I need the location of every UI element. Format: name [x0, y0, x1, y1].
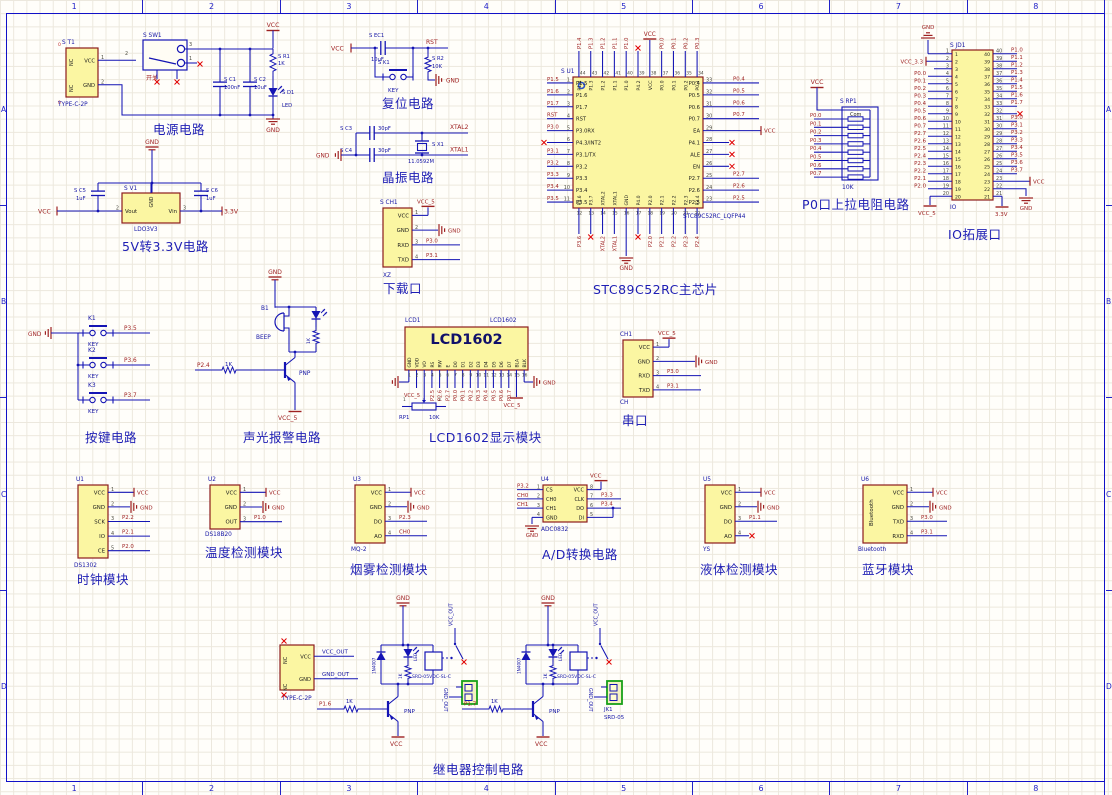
designator[interactable]: U3 [353, 477, 361, 483]
label[interactable]: GND [526, 533, 539, 539]
net-label[interactable]: KEY [88, 409, 99, 415]
module-title-lcd[interactable]: LCD1602显示模块 [429, 427, 542, 446]
module-title-ldo[interactable]: 5V转3.3V电路 [122, 236, 209, 255]
pin-name[interactable]: P2.2 [671, 195, 677, 205]
contact-dot[interactable] [599, 643, 601, 645]
net-label[interactable]: P1.4 [577, 37, 583, 49]
pin-number[interactable]: 10 [476, 373, 482, 379]
pin-number[interactable]: 6 [590, 503, 593, 509]
key-switch[interactable] [90, 330, 95, 335]
net-label[interactable]: P0.6 [499, 390, 505, 401]
pin-number[interactable]: 1 [537, 484, 540, 490]
module-title-mcu[interactable]: STC89C52RC主芯片 [593, 279, 718, 298]
rotated-pin-name[interactable]: NC [69, 84, 75, 92]
pin-name[interactable]: 25 [984, 164, 990, 170]
net-label[interactable]: PNP [299, 371, 311, 377]
net-label[interactable]: P2.4 [914, 153, 926, 159]
designator[interactable]: S V1 [124, 186, 137, 192]
pin-number[interactable]: 4 [910, 530, 913, 536]
pin-number[interactable]: 1 [243, 487, 246, 493]
gnd-flag[interactable]: GND [268, 269, 282, 276]
pin-name[interactable]: P0.7 [689, 117, 700, 123]
resistor[interactable] [425, 53, 431, 76]
pin-number[interactable]: 13 [943, 138, 949, 144]
net-label[interactable]: GND_OUT [442, 688, 448, 712]
pin-name[interactable]: D1 [461, 361, 467, 367]
net-label[interactable]: S C6 [206, 188, 218, 194]
net-label[interactable]: P1.7 [464, 702, 477, 708]
pin-name[interactable]: D0 [453, 361, 459, 367]
net-label[interactable]: SRD-05 [604, 715, 624, 721]
label[interactable]: GND [922, 25, 935, 31]
pin-name[interactable]: AO [374, 534, 382, 540]
net-label[interactable]: P3.3 [1011, 137, 1023, 143]
net-label[interactable]: P3.0 [547, 125, 559, 131]
part-name[interactable]: IO [950, 205, 957, 211]
pin-number[interactable]: 4 [537, 512, 540, 518]
pin-number[interactable]: 1 [408, 373, 411, 379]
pin-name[interactable]: 12 [955, 134, 961, 140]
net-label[interactable]: P2.3 [914, 161, 926, 167]
pin-name[interactable]: 10 [955, 119, 961, 125]
pin-name[interactable]: Vout [125, 209, 137, 215]
net-label[interactable]: RP1 [399, 415, 409, 421]
net-label[interactable]: 3 [189, 42, 192, 48]
net-label[interactable]: P2.3 [683, 236, 689, 247]
pin-name[interactable]: VDD [415, 357, 421, 367]
net-label[interactable]: VCC_OUT [322, 649, 349, 655]
pin-number[interactable]: 3 [111, 516, 114, 522]
label[interactable]: GND [705, 360, 718, 366]
pin-number[interactable]: 4 [946, 71, 949, 77]
net-label[interactable]: P1.2 [1011, 62, 1023, 68]
net-label[interactable]: P1.6 [319, 702, 332, 708]
pin-number[interactable]: 2 [738, 501, 741, 507]
net-label[interactable]: K2 [88, 347, 96, 354]
pin-name[interactable]: DO [576, 506, 584, 512]
pin-name[interactable]: 1 [955, 52, 958, 58]
net-label[interactable]: VCC [390, 741, 402, 748]
pin-number[interactable]: 22 [695, 211, 701, 217]
net-label[interactable]: S C2 [254, 77, 266, 83]
net-label[interactable]: 1K [543, 673, 548, 679]
pin-name[interactable]: VCC [648, 81, 654, 91]
net-label[interactable]: P1.6 [547, 89, 559, 95]
pin-name[interactable]: P1.4 [577, 80, 583, 90]
net-label[interactable]: P0.1 [810, 121, 821, 127]
pin-number[interactable]: 3 [910, 516, 913, 522]
pin-name[interactable]: P2.0 [648, 195, 654, 205]
pin-name[interactable]: VCC [226, 490, 237, 496]
pin-number[interactable]: 36 [674, 71, 680, 77]
collector[interactable] [285, 358, 295, 366]
collector[interactable] [533, 697, 543, 705]
pin-number[interactable]: 23 [706, 197, 712, 203]
net-label[interactable]: GND_OUT [587, 688, 593, 712]
pin-name[interactable]: XTAL1 [612, 191, 618, 205]
net-label[interactable]: P1.3 [1011, 70, 1023, 76]
net-label[interactable]: P3.7 [1011, 167, 1023, 173]
pin-name[interactable]: 16 [955, 164, 961, 170]
net-label[interactable]: GND [316, 154, 330, 160]
diode[interactable] [404, 649, 413, 657]
diode[interactable] [269, 88, 278, 96]
net-label[interactable]: LED [413, 653, 418, 661]
net-label[interactable]: 1N4007 [372, 657, 377, 674]
pin-number[interactable]: 31 [996, 116, 1002, 122]
pin-number[interactable]: 8 [462, 373, 465, 379]
pin-name[interactable]: CH0 [546, 497, 556, 503]
net-label[interactable]: P0.1 [914, 78, 926, 84]
pin-name[interactable]: SCK [94, 520, 105, 526]
pin-name[interactable]: P3.1/TX [576, 152, 596, 158]
pin-number[interactable]: 35 [686, 71, 692, 77]
net-label[interactable]: LED [558, 653, 563, 661]
net-label[interactable]: VCC_OUT [594, 603, 600, 626]
pin-number[interactable]: 17 [943, 168, 949, 174]
pin-number[interactable]: 4 [738, 530, 741, 536]
pin-number[interactable]: 3 [946, 63, 949, 69]
pin-name[interactable]: DO [724, 519, 732, 525]
net-label[interactable]: P0.5 [914, 108, 926, 114]
net-label[interactable]: BEEP [256, 335, 271, 341]
pin-name[interactable]: EN [693, 164, 700, 170]
pin-name[interactable]: 22 [984, 187, 990, 193]
pin-number[interactable]: 19 [943, 183, 949, 189]
pin-name[interactable]: BLA [514, 359, 520, 368]
pin-number[interactable]: 11 [943, 123, 949, 129]
designator[interactable]: U6 [861, 477, 869, 483]
net-label[interactable]: 1N4007 [517, 657, 522, 674]
net-label[interactable]: P1.7 [547, 101, 559, 107]
pin-name[interactable]: RXD [397, 243, 409, 249]
label[interactable]: GND [272, 506, 285, 512]
pin-name[interactable]: P2.3 [683, 195, 689, 205]
pin-name[interactable]: 14 [955, 149, 961, 155]
designator[interactable]: U1 [76, 477, 84, 483]
pin-name[interactable]: 33 [984, 104, 990, 110]
pin-number[interactable]: 28 [996, 138, 1002, 144]
part-name[interactable]: ADC0832 [541, 527, 569, 533]
pin-number[interactable]: 4 [431, 373, 434, 379]
net-label[interactable]: P0.7 [810, 171, 821, 177]
net-label[interactable]: P0.6 [810, 163, 821, 169]
pin-number[interactable]: 9 [469, 373, 472, 379]
pin-name[interactable]: 37 [984, 74, 990, 80]
pin-name[interactable]: D2 [468, 361, 474, 367]
pin-name[interactable]: P1.3 [589, 80, 595, 90]
pin-name[interactable]: DI [579, 515, 584, 521]
pin-number[interactable]: 18 [648, 211, 654, 217]
net-label[interactable]: S C4 [340, 148, 353, 154]
module-title-clock[interactable]: 时钟模块 [77, 569, 129, 588]
pin-number[interactable]: 35 [996, 86, 1002, 92]
pin-number[interactable]: 27 [706, 149, 712, 155]
pin-number[interactable]: 33 [996, 101, 1002, 107]
diode[interactable] [549, 649, 558, 657]
pin-number[interactable]: 40 [627, 71, 633, 77]
pin-name[interactable]: GND [397, 228, 409, 234]
wire[interactable] [110, 85, 273, 115]
net-label[interactable]: P1.0 [624, 38, 630, 49]
pin-name[interactable]: 36 [984, 82, 990, 88]
pin-name[interactable]: RS [430, 361, 436, 367]
net-label[interactable]: P3.1 [547, 148, 559, 154]
pin-number[interactable]: 7 [590, 494, 593, 500]
pin-number[interactable]: 1 [101, 55, 104, 61]
pin-number[interactable]: 42 [604, 71, 610, 77]
net-label[interactable]: S C1 [224, 77, 236, 83]
pin-number[interactable]: 1 [567, 78, 570, 84]
net-label[interactable]: GND [28, 332, 42, 338]
pin-name[interactable]: P0.1 [671, 80, 677, 90]
pin-name[interactable]: P1.1 [612, 80, 618, 90]
net-label[interactable]: 11.0592M [408, 159, 434, 165]
pin-number[interactable]: 13 [499, 373, 505, 379]
net-label[interactable]: P2.1 [660, 236, 666, 247]
net-label[interactable]: P0.0 [660, 38, 666, 49]
pin-name[interactable]: P1.6 [576, 93, 587, 99]
net-label[interactable]: P1.5 [547, 77, 559, 83]
net-label[interactable]: P3.0 [921, 515, 933, 521]
pin-number[interactable]: 2 [101, 79, 104, 85]
vertical-label[interactable]: Bluetooth [869, 499, 875, 526]
net-label[interactable]: VCC_3.3 [901, 59, 923, 65]
net-label[interactable]: XTAL1 [612, 236, 618, 251]
net-label[interactable]: P0.0 [810, 113, 821, 119]
module-title-adc[interactable]: A/D转换电路 [542, 544, 618, 563]
wire[interactable] [456, 646, 463, 660]
net-label[interactable]: P3.4 [1011, 145, 1023, 151]
pin-number[interactable]: 38 [651, 71, 657, 77]
resistor[interactable] [550, 662, 556, 682]
pin-name[interactable]: P0.3 [695, 80, 701, 90]
pin-number[interactable]: 2 [416, 373, 419, 379]
pin-name[interactable]: 39 [984, 59, 990, 65]
net-label[interactable]: 0 [58, 42, 61, 48]
module-title-reset[interactable]: 复位电路 [382, 93, 434, 112]
designator[interactable]: U5 [703, 477, 711, 483]
net-label[interactable]: P3.4 [547, 184, 559, 190]
net-label[interactable]: P2.6 [733, 184, 745, 190]
pin-number[interactable]: 38 [996, 63, 1002, 69]
pin-number[interactable]: 11 [564, 197, 570, 203]
terminal-pin[interactable] [465, 685, 472, 692]
pin-name[interactable]: GND [638, 359, 650, 365]
pin-number[interactable]: 30 [706, 113, 712, 119]
module-title-smoke[interactable]: 烟雾检测模块 [350, 559, 428, 578]
designator[interactable]: S T1 [62, 40, 75, 46]
pin-name[interactable]: 30 [984, 127, 990, 133]
collector[interactable] [388, 697, 398, 705]
label[interactable]: GND [448, 229, 461, 235]
pin-name[interactable]: 9 [955, 112, 958, 118]
net-label[interactable]: XTAL1 [450, 147, 469, 154]
net-label[interactable]: P1.2 [601, 38, 607, 49]
pin-name[interactable]: 2 [955, 59, 958, 65]
net-label[interactable]: LED [282, 103, 292, 109]
pin-number[interactable]: 9 [946, 108, 949, 114]
pin-name[interactable]: 8 [955, 104, 958, 110]
pin-number[interactable]: 16 [522, 373, 528, 379]
net-label[interactable]: 1K [306, 337, 312, 344]
wire[interactable] [284, 307, 289, 316]
net-label[interactable]: P0.5 [733, 88, 745, 94]
net-label[interactable]: P2.6 [914, 138, 926, 144]
pin-number[interactable]: 1 [415, 210, 418, 216]
pin-number[interactable]: 26 [706, 161, 712, 167]
resistor[interactable] [313, 327, 319, 347]
net-label[interactable]: P1.0 [254, 515, 266, 521]
net-label[interactable]: 3 [438, 397, 441, 403]
net-label[interactable]: P1.4 [1011, 77, 1023, 83]
net-label[interactable]: P2.2 [914, 168, 926, 174]
net-label[interactable]: VCC [414, 490, 426, 496]
pin-number[interactable]: 2 [415, 225, 418, 231]
module-title-crystal[interactable]: 晶振电路 [382, 167, 434, 186]
pin-number[interactable]: 15 [612, 211, 618, 217]
net-label[interactable]: K1 [88, 315, 96, 322]
pin-number[interactable]: 1 [946, 48, 949, 54]
net-label[interactable]: P2.4 [695, 236, 701, 247]
pin-name[interactable]: P4.1 [689, 141, 700, 147]
gnd-flag[interactable]: GND [396, 595, 410, 602]
resistor[interactable] [848, 158, 863, 162]
pin-name[interactable]: 18 [955, 179, 961, 185]
pin-name[interactable]: 4 [955, 74, 958, 80]
part-name[interactable]: YS [702, 547, 711, 553]
net-label[interactable]: P0.7 [733, 112, 745, 118]
net-label[interactable]: S EC1 [369, 33, 384, 39]
pin-name[interactable]: 31 [984, 119, 990, 125]
pin-name[interactable]: P1.2 [601, 80, 607, 90]
pin-name[interactable]: P3.7 [589, 195, 595, 205]
pin-name[interactable]: D4 [484, 361, 490, 367]
pin-number[interactable]: 4 [415, 254, 418, 260]
net-label[interactable]: P2.5 [914, 146, 926, 152]
net-label[interactable]: P2.0 [914, 183, 926, 189]
net-label[interactable]: 1uF [76, 196, 86, 202]
pin-number[interactable]: 21 [683, 211, 689, 217]
pin-number[interactable]: 18 [943, 176, 949, 182]
pin-name[interactable]: CLK [574, 497, 584, 503]
module-title-download[interactable]: 下载口 [383, 278, 422, 297]
pin-number[interactable]: 12 [491, 373, 497, 379]
pin-name[interactable]: P4.2 [636, 80, 642, 90]
power-flag[interactable]: VCC [267, 22, 280, 29]
pin-number[interactable]: 23 [996, 176, 1002, 182]
designator[interactable]: S RP1 [840, 99, 857, 105]
net-label[interactable]: 30pF [378, 126, 391, 132]
resistor[interactable] [848, 142, 863, 146]
net-label[interactable]: GND [446, 79, 460, 85]
pin-number[interactable]: 25 [706, 173, 712, 179]
pin-name[interactable]: RW [438, 360, 444, 368]
resistor[interactable] [270, 49, 276, 76]
net-label[interactable]: JK1 [603, 707, 613, 713]
pin-name[interactable]: 34 [984, 97, 990, 103]
pin-name[interactable]: GND [93, 505, 105, 511]
pin-name[interactable]: BLK [522, 359, 528, 367]
pin-number[interactable]: 4 [111, 531, 114, 537]
net-label[interactable]: P3.2 [517, 484, 529, 490]
pin-number[interactable]: 3 [243, 516, 246, 522]
net-label[interactable]: P2.3 [399, 515, 411, 521]
wire[interactable] [428, 76, 435, 80]
key-switch[interactable] [101, 330, 106, 335]
net-label[interactable]: P2.0 [122, 544, 134, 550]
pin-name[interactable]: VCC [721, 490, 732, 496]
pin-number[interactable]: 10 [943, 116, 949, 122]
designator[interactable]: S U1 [561, 69, 575, 75]
pin-number[interactable]: 9 [567, 173, 570, 179]
net-label[interactable]: GND [266, 127, 280, 134]
net-label[interactable]: 1 [189, 56, 192, 62]
pin-name[interactable]: P3.6 [577, 195, 583, 205]
pin-number[interactable]: 2 [567, 90, 570, 96]
net-label[interactable]: 100nF [224, 85, 240, 91]
pin-name[interactable]: VCC [398, 213, 409, 219]
net-label[interactable]: P3.3 [601, 492, 613, 498]
pin-number[interactable]: 2 [656, 356, 659, 362]
pin-number[interactable]: 7 [454, 373, 457, 379]
pin-number[interactable]: 2 [243, 502, 246, 508]
net-label[interactable]: P0.2 [810, 130, 821, 136]
pin-number[interactable]: 3 [537, 503, 540, 509]
part-name[interactable]: DS18B20 [205, 532, 232, 538]
module-title-power[interactable]: 电源电路 [153, 119, 205, 138]
net-label[interactable]: P2.4 [197, 363, 210, 369]
pin-number[interactable]: 2 [910, 501, 913, 507]
pin-name[interactable]: VCC [300, 654, 311, 660]
pin-name[interactable]: VCC [371, 490, 382, 496]
pin-number[interactable]: 8 [590, 484, 593, 490]
pin-name[interactable]: IO [99, 534, 105, 540]
net-label[interactable]: P3.1 [1011, 122, 1023, 128]
label[interactable]: GND [140, 505, 153, 511]
net-label[interactable]: PNP [549, 709, 561, 715]
net-label[interactable]: XTAL2 [450, 124, 469, 131]
pin-name[interactable]: 15 [955, 157, 961, 163]
pin-name[interactable]: P4.0 [636, 195, 642, 205]
pin-name[interactable]: EA [693, 129, 700, 135]
label[interactable]: GND [417, 505, 430, 511]
pin-name[interactable]: GND [892, 505, 904, 511]
net-label[interactable]: VCC [269, 490, 281, 496]
pin-name[interactable]: 11 [955, 127, 961, 133]
pin-number[interactable]: 5 [946, 78, 949, 84]
net-label[interactable]: P2.7 [445, 390, 451, 401]
pin-name[interactable]: P3.4 [576, 188, 588, 194]
pin-number[interactable]: 13 [588, 211, 594, 217]
net-label[interactable]: P0.3 [695, 38, 701, 49]
pin-number[interactable]: 24 [996, 168, 1002, 174]
net-label[interactable]: VCC [535, 741, 547, 748]
pin-number[interactable]: 1 [388, 487, 391, 493]
pin-name[interactable]: P0.0 [660, 80, 666, 90]
net-label[interactable]: P3.7 [124, 393, 137, 399]
net-label[interactable]: P0.3 [810, 138, 821, 144]
pin-name[interactable]: XTAL2 [601, 191, 607, 205]
pin-name[interactable]: GND [370, 505, 382, 511]
label[interactable]: 3.3V [995, 212, 1008, 218]
net-label[interactable]: 2 [125, 51, 128, 57]
pin-number[interactable]: 2 [388, 501, 391, 507]
net-label[interactable]: P0.0 [453, 390, 459, 401]
pin-number[interactable]: 11 [483, 373, 489, 379]
pin-number[interactable]: 43 [592, 71, 598, 77]
pin-name[interactable]: P3.0RX [576, 129, 595, 135]
